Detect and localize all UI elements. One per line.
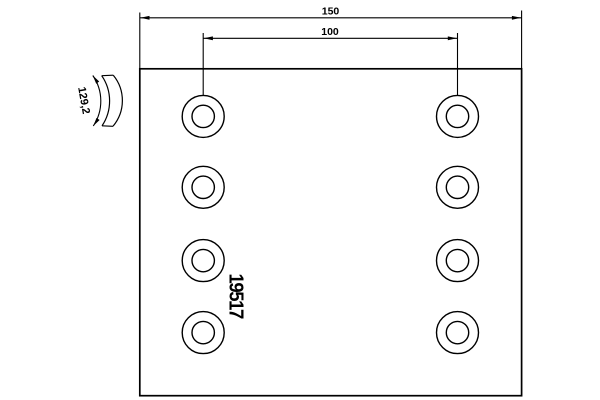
svg-text:19517: 19517: [224, 273, 247, 319]
svg-text:150: 150: [322, 6, 340, 18]
svg-text:100: 100: [321, 26, 339, 38]
